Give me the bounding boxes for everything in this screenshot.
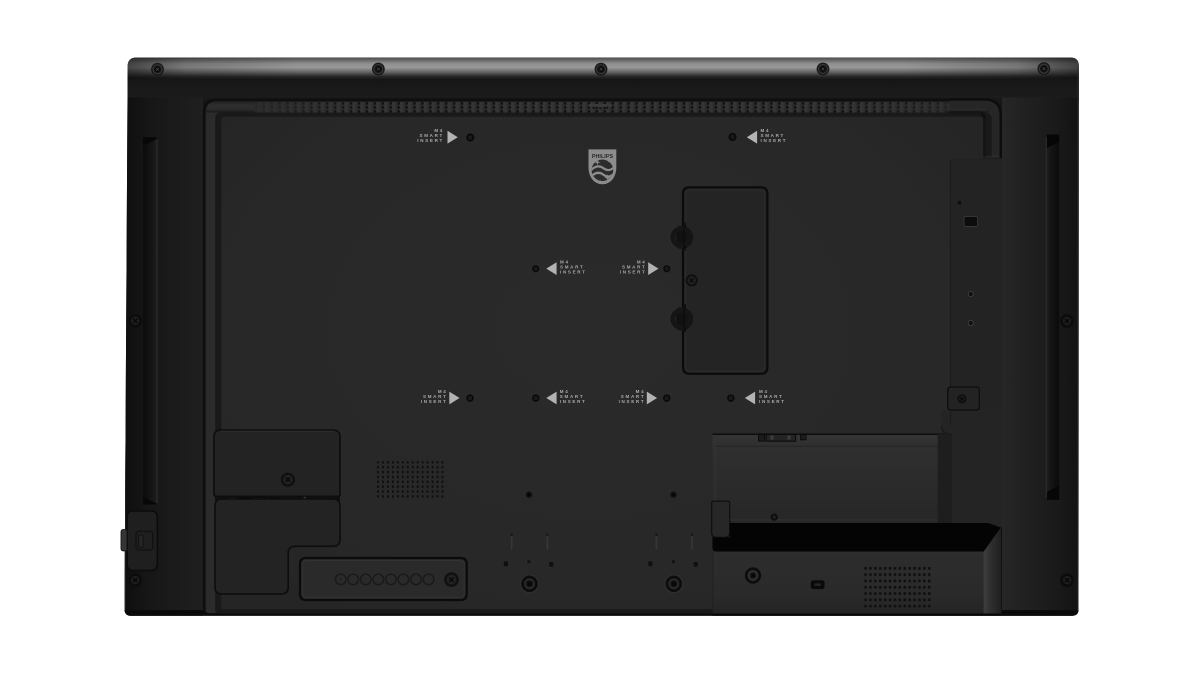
svg-text:INSERT: INSERT — [759, 399, 786, 404]
svg-text:INSERT: INSERT — [761, 138, 788, 143]
svg-text:INSERT: INSERT — [421, 399, 448, 404]
svg-text:PHILIPS: PHILIPS — [592, 154, 614, 160]
svg-text:INSERT: INSERT — [560, 399, 587, 404]
svg-text:INSERT: INSERT — [619, 399, 646, 404]
svg-text:INSERT: INSERT — [417, 138, 444, 143]
svg-text:INSERT: INSERT — [620, 269, 647, 274]
svg-text:INSERT: INSERT — [560, 269, 587, 274]
